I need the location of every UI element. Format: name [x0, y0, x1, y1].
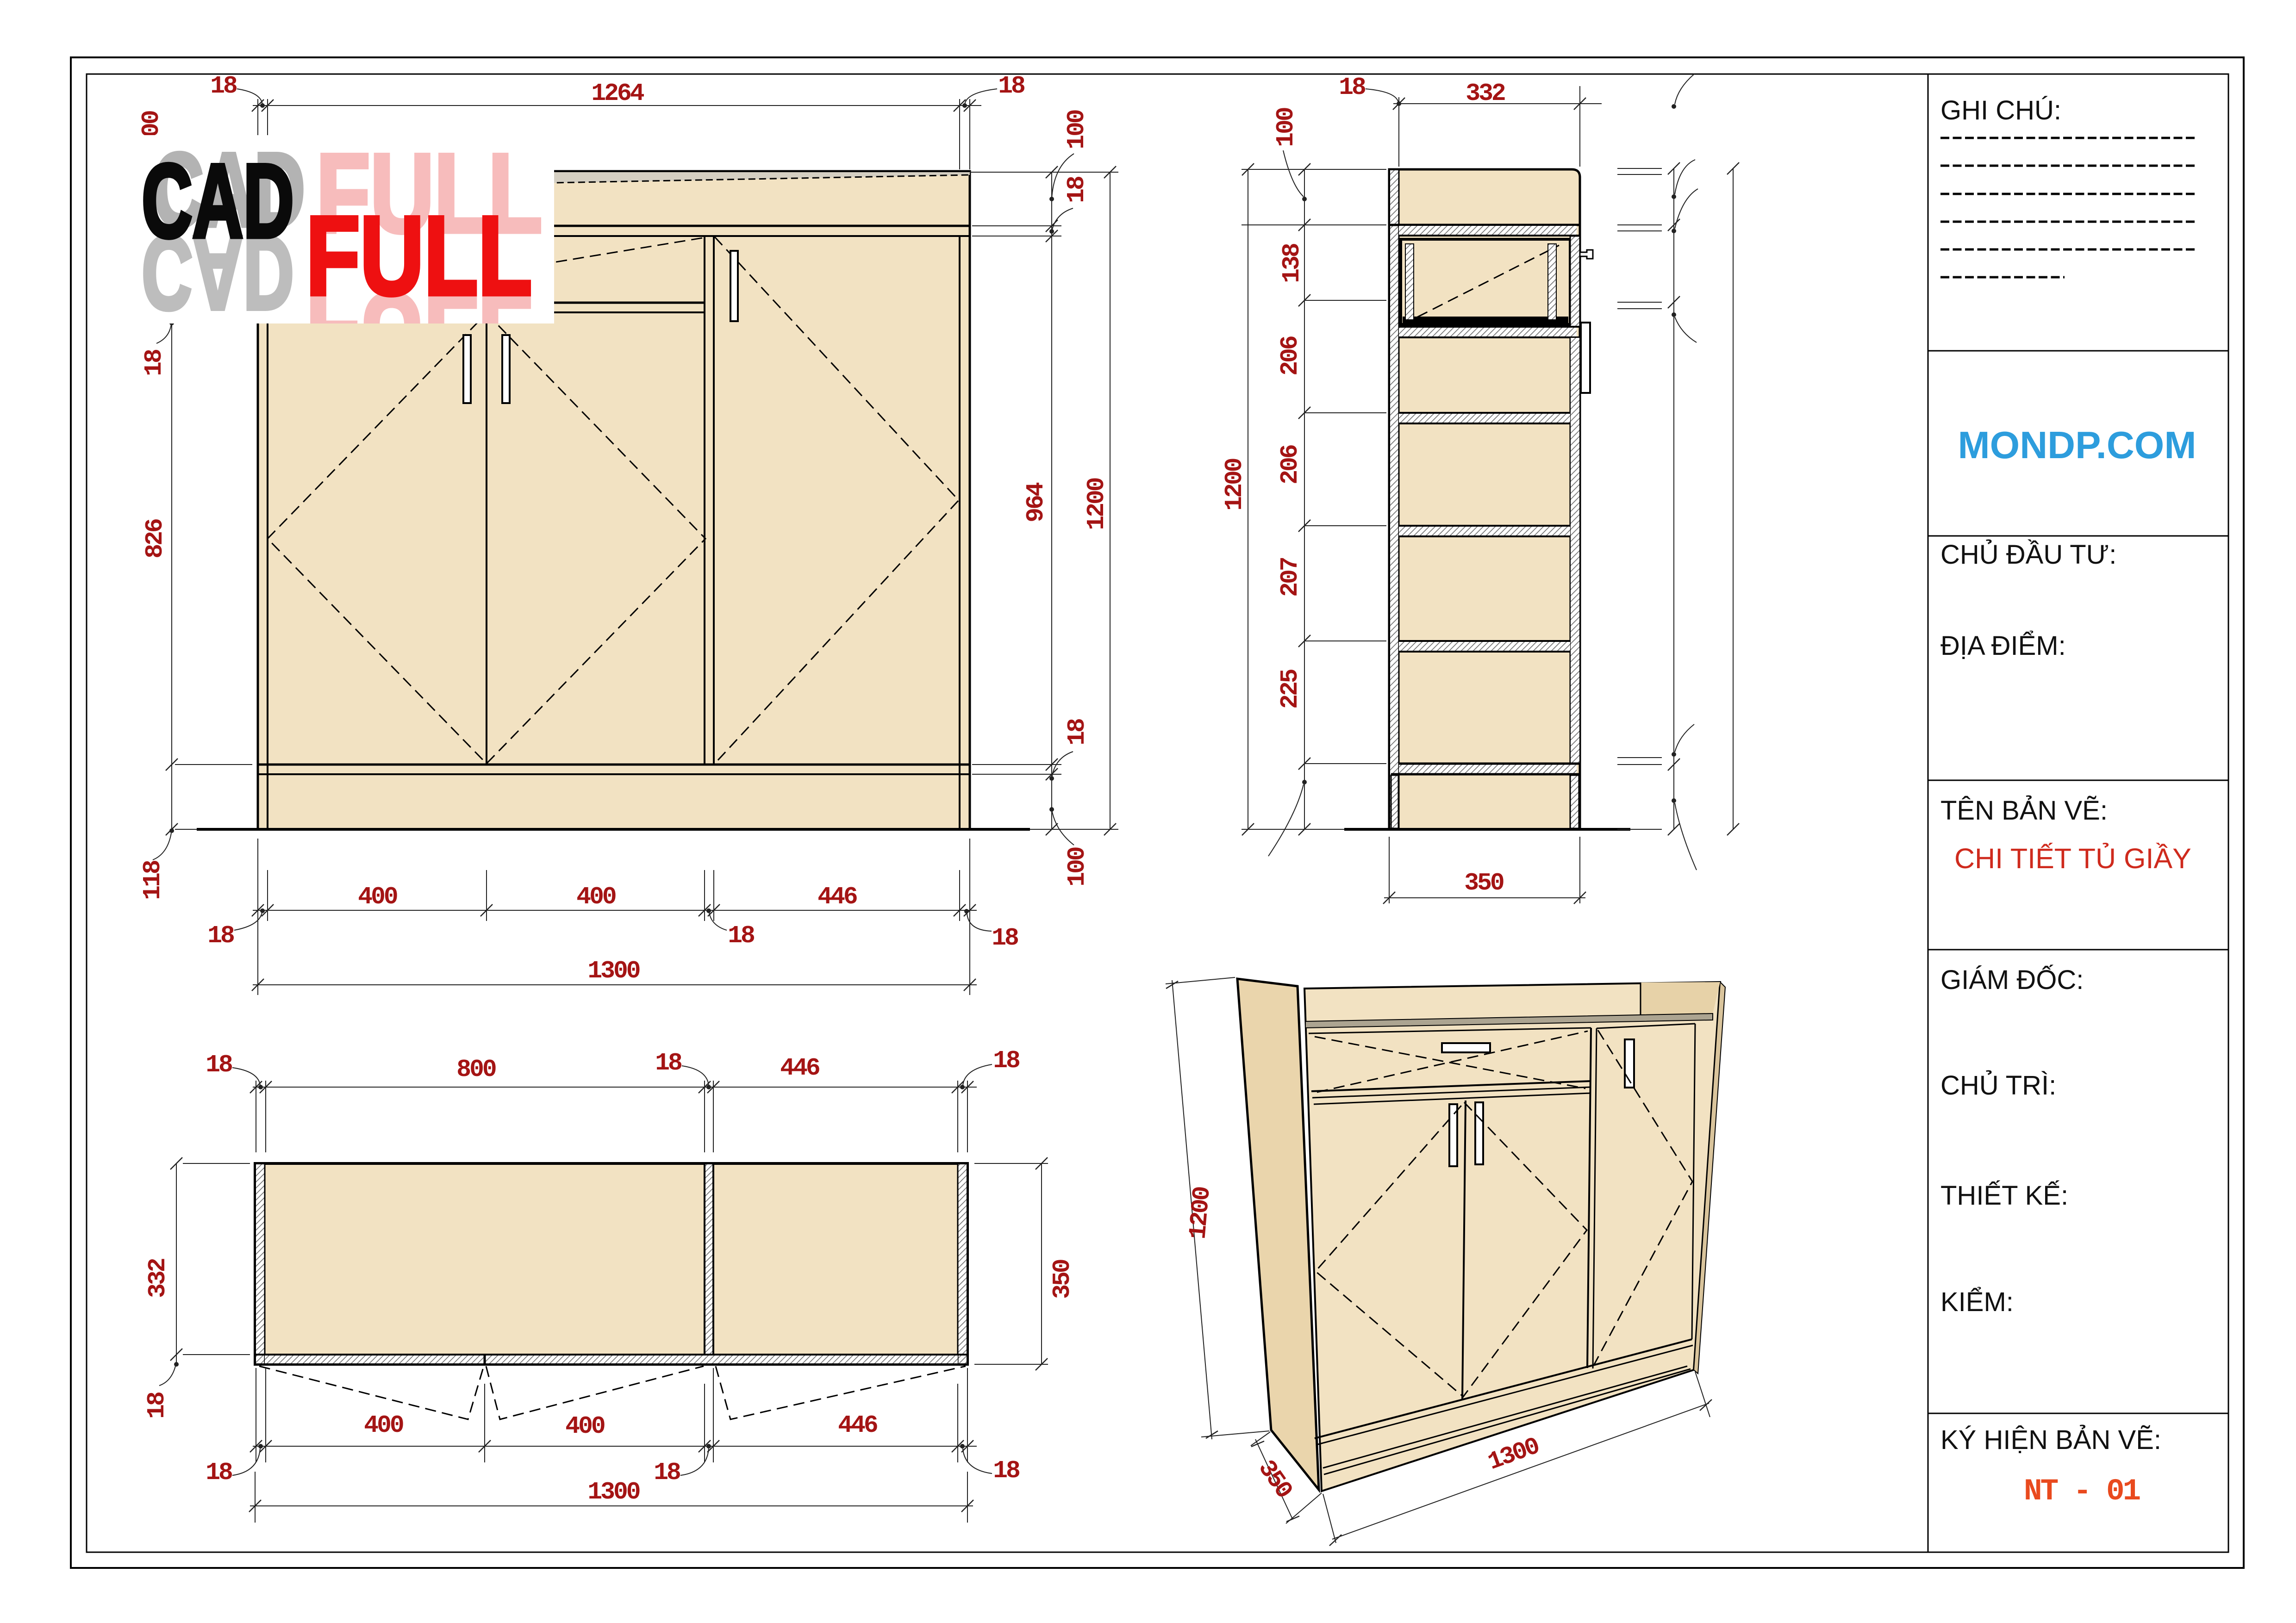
svg-text:118: 118: [139, 861, 167, 900]
svg-text:KIỂM:: KIỂM:: [1940, 1287, 2014, 1317]
svg-text:ĐỊA ĐIỂM:: ĐỊA ĐIỂM:: [1940, 631, 2066, 661]
svg-text:00: 00: [137, 111, 165, 137]
svg-text:GHI CHÚ:: GHI CHÚ:: [1940, 95, 2061, 125]
svg-text:NT - 01: NT - 01: [2024, 1474, 2140, 1509]
svg-text:THIẾT KẾ:: THIẾT KẾ:: [1940, 1181, 2068, 1211]
svg-text:100: 100: [1063, 110, 1091, 149]
svg-text:GIÁM ĐỐC:: GIÁM ĐỐC:: [1940, 965, 2084, 995]
svg-text:18: 18: [993, 1047, 1019, 1075]
svg-text:206: 206: [1276, 445, 1304, 485]
svg-text:MONDP.COM: MONDP.COM: [1958, 423, 2196, 466]
svg-text:18: 18: [655, 1049, 681, 1077]
svg-text:400: 400: [364, 1412, 403, 1439]
svg-text:100: 100: [1272, 108, 1300, 147]
svg-text:18: 18: [1063, 719, 1091, 746]
svg-text:400: 400: [576, 883, 616, 911]
svg-text:206: 206: [1276, 336, 1304, 376]
svg-text:350: 350: [1048, 1260, 1076, 1299]
svg-text:138: 138: [1278, 244, 1306, 283]
svg-text:826: 826: [141, 519, 169, 559]
svg-text:350: 350: [1464, 869, 1504, 897]
svg-text:TÊN BẢN VẼ:: TÊN BẢN VẼ:: [1940, 796, 2108, 826]
svg-text:207: 207: [1276, 558, 1304, 597]
svg-text:CHI TIẾT TỦ GIẦY: CHI TIẾT TỦ GIẦY: [1954, 843, 2191, 874]
svg-text:446: 446: [817, 883, 857, 911]
svg-text:1200: 1200: [1221, 459, 1248, 510]
svg-text:1300: 1300: [587, 1478, 639, 1506]
svg-text:18: 18: [1063, 177, 1091, 203]
svg-text:CAD: CAD: [142, 143, 294, 259]
svg-text:18: 18: [206, 1459, 232, 1486]
svg-text:332: 332: [144, 1259, 172, 1298]
svg-text:1200: 1200: [1083, 478, 1111, 530]
svg-text:446: 446: [838, 1412, 877, 1439]
svg-text:FULL: FULL: [306, 193, 532, 318]
svg-text:18: 18: [728, 922, 754, 950]
svg-text:18: 18: [1339, 74, 1365, 101]
svg-text:1200: 1200: [1184, 1186, 1217, 1240]
svg-text:100: 100: [1063, 847, 1091, 887]
svg-text:18: 18: [654, 1459, 680, 1486]
svg-text:CHỦ TRÌ:: CHỦ TRÌ:: [1940, 1070, 2056, 1101]
svg-text:18: 18: [992, 924, 1018, 952]
svg-text:18: 18: [998, 72, 1024, 100]
svg-text:964: 964: [1022, 482, 1050, 522]
svg-text:18: 18: [206, 1051, 232, 1079]
svg-text:18: 18: [143, 1393, 171, 1419]
svg-text:225: 225: [1276, 669, 1304, 709]
svg-text:KÝ HIỆN BẢN VẼ:: KÝ HIỆN BẢN VẼ:: [1940, 1425, 2161, 1455]
svg-text:400: 400: [358, 883, 397, 911]
svg-text:400: 400: [565, 1412, 605, 1440]
svg-text:332: 332: [1466, 80, 1505, 107]
svg-text:18: 18: [993, 1457, 1019, 1485]
svg-text:18: 18: [140, 350, 168, 376]
svg-text:446: 446: [780, 1054, 819, 1082]
svg-text:18: 18: [207, 922, 234, 950]
svg-text:1300: 1300: [587, 957, 639, 985]
svg-text:800: 800: [456, 1056, 496, 1083]
svg-text:1264: 1264: [591, 80, 644, 107]
svg-text:CHỦ ĐẦU TƯ:: CHỦ ĐẦU TƯ:: [1940, 540, 2116, 570]
svg-text:18: 18: [210, 72, 237, 100]
